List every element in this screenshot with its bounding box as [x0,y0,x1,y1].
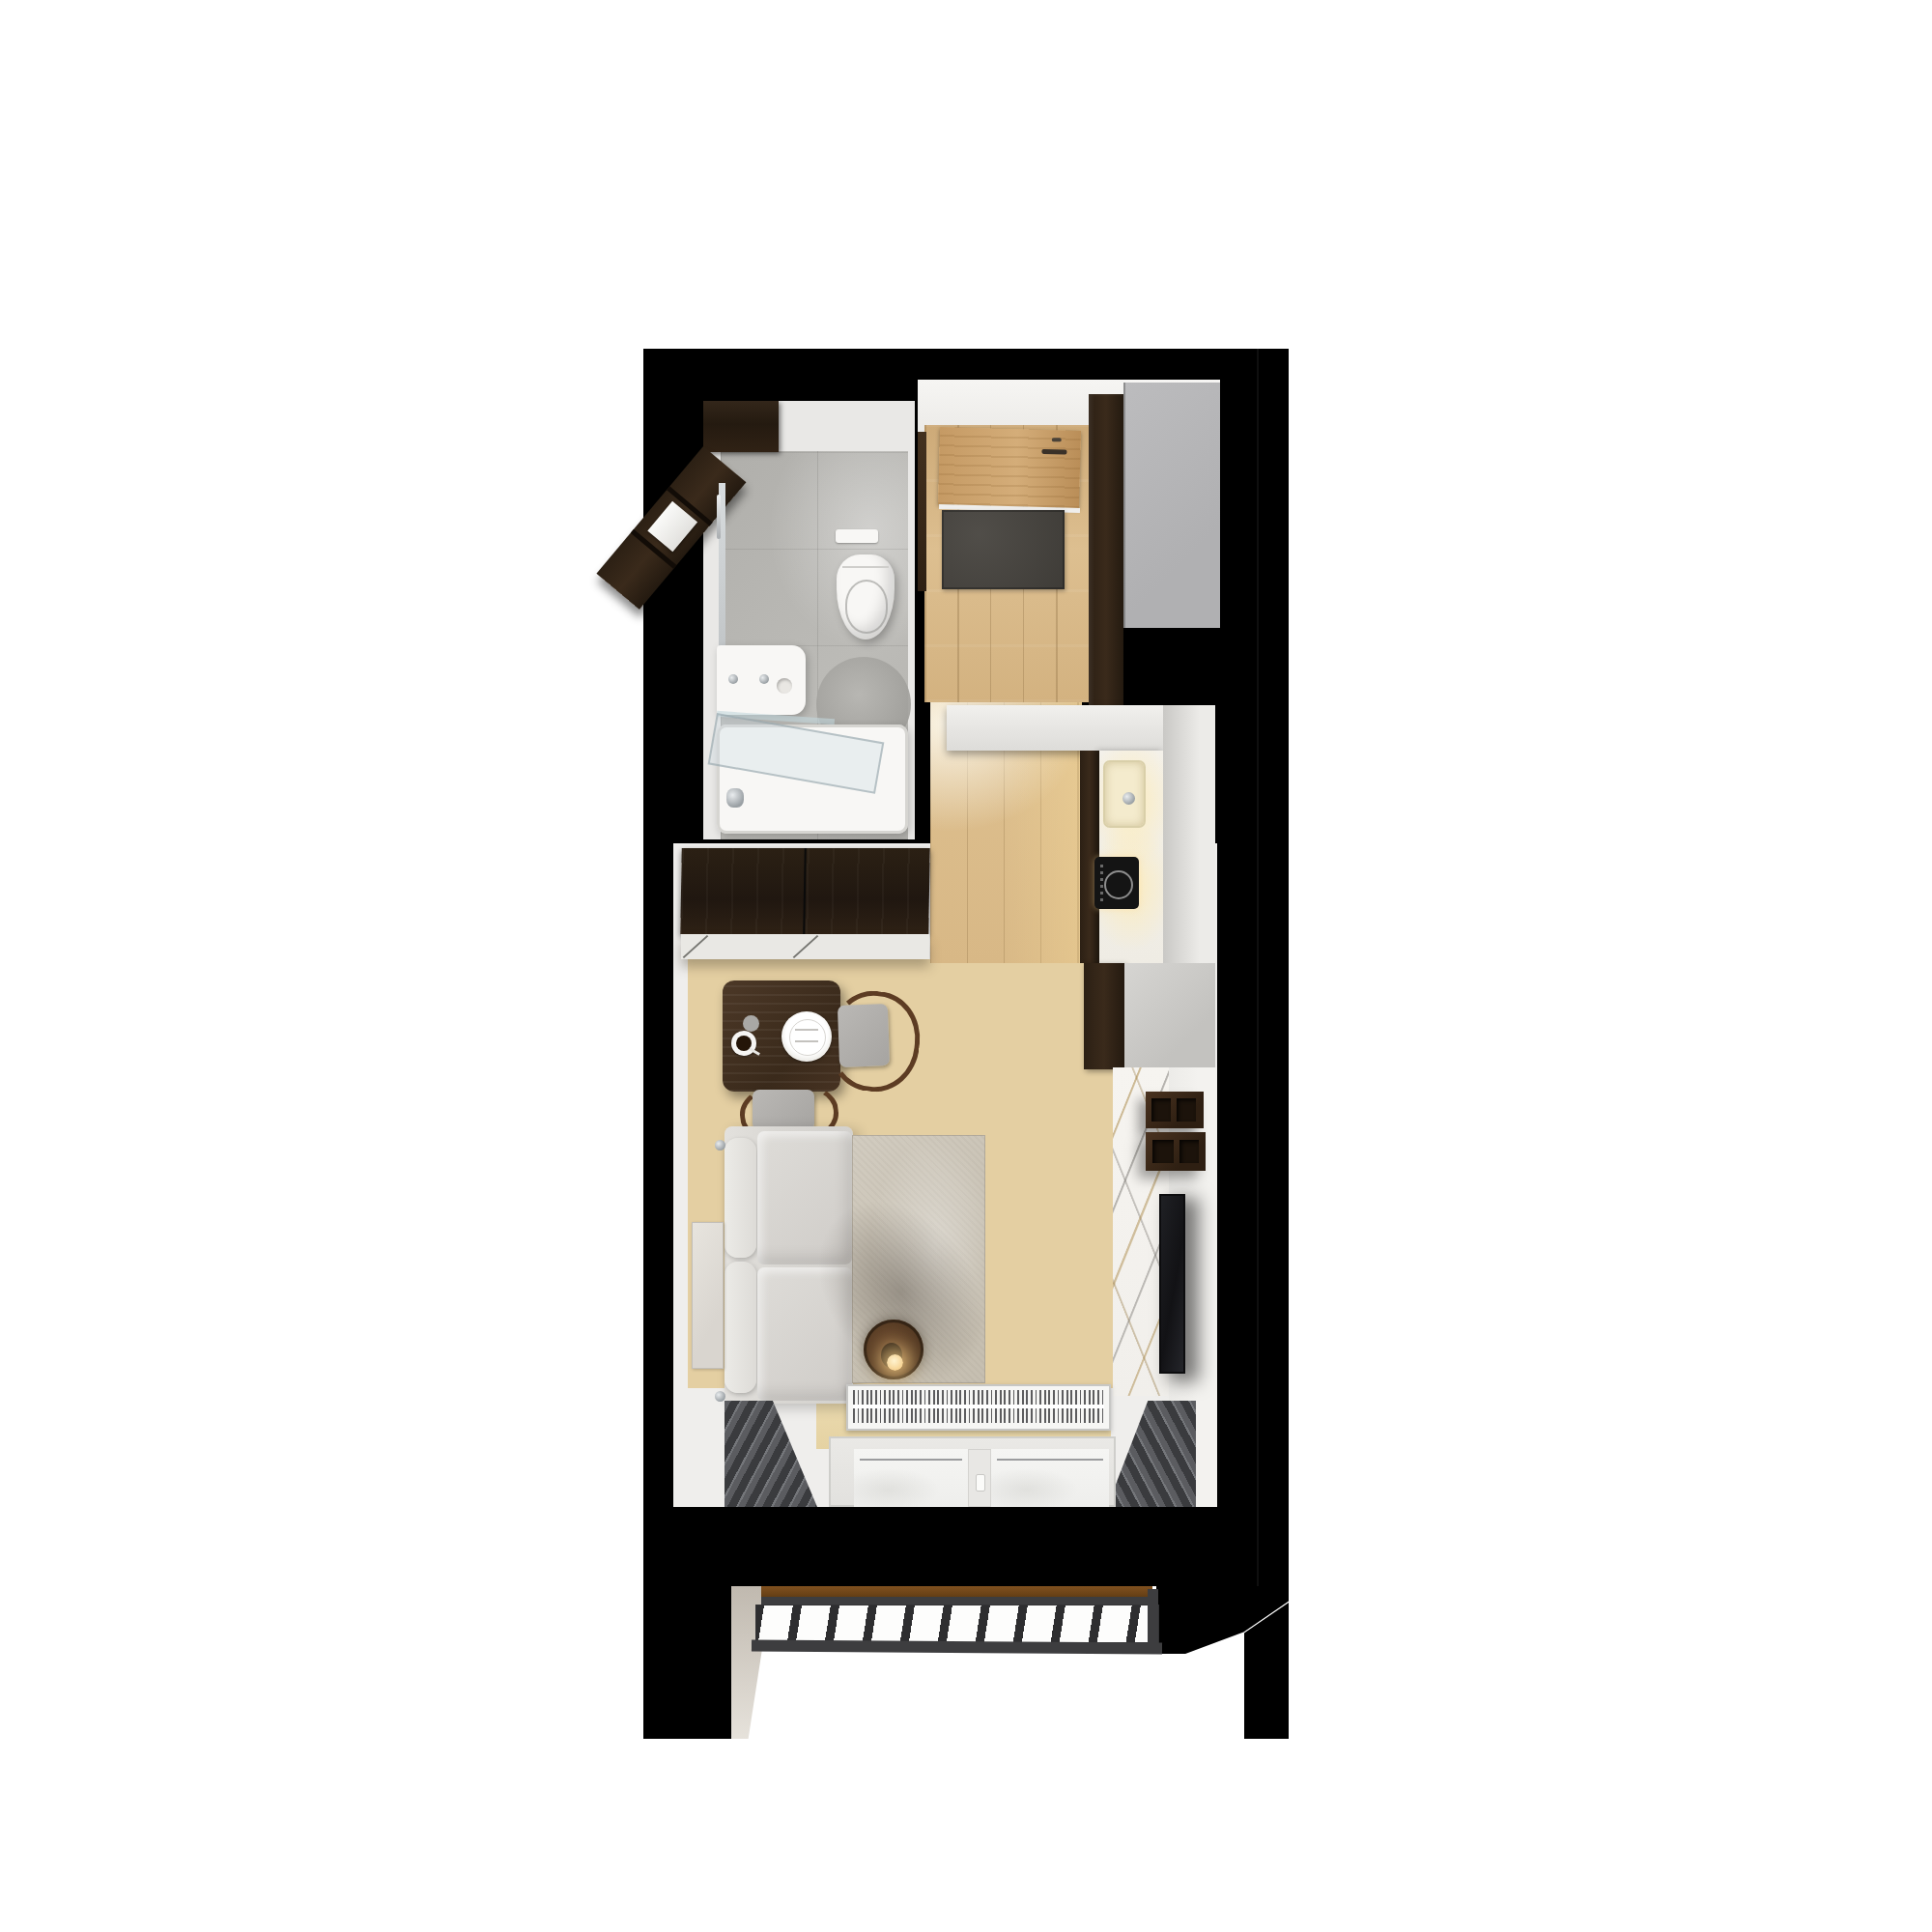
outer-wall-left-column [643,1586,731,1739]
window-pane-rail [860,1459,962,1461]
wardrobe-front-seam [793,935,819,958]
kitchen-low-cabinet [1084,963,1124,1069]
radiator-fins [853,1408,1104,1423]
grate-right-cap [1148,1589,1158,1651]
vanity-sink [717,645,806,715]
bathroom-wall-cabinet [703,401,779,452]
kitchen-upper-cabinet [947,705,1163,751]
wardrobe-door-seam [803,848,807,934]
faucet-icon [728,674,738,684]
sofa-back-cushion [724,1138,756,1258]
toilet-seat [845,580,888,634]
sofa-back-cushion [724,1262,756,1393]
wall-hook-icon [715,1140,725,1151]
window-mullion [968,1449,991,1507]
window-handle-icon [976,1474,985,1492]
napkin [743,1015,759,1032]
wall-mounted-tv [1159,1194,1185,1374]
dining-chair-right-seat [838,1004,890,1067]
cutlery-icon [795,1029,818,1031]
wall-art [692,1222,724,1369]
cutlery-icon [795,1040,818,1042]
wardrobe-front-seam [683,935,709,958]
toilet-flush-plate [836,529,878,543]
wall-shelf-box [1146,1092,1204,1128]
kitchen-side-panel [1163,705,1215,963]
radiator-grille [846,1384,1111,1431]
entry-door [938,427,1081,508]
shelf-compartment [1152,1140,1174,1163]
grate-bottom-bar [752,1640,1162,1655]
wardrobe-front-edge [681,934,929,959]
floorplan-stage [0,0,1932,1932]
doormat [942,510,1065,589]
balcony-grate-floor [755,1605,1159,1643]
hob-burner-ring [1104,870,1133,899]
shelf-compartment [1151,1098,1171,1122]
kitchen-faucet-icon [1122,792,1135,805]
basin [777,678,792,694]
sliding-wardrobe [680,848,930,934]
spoon-icon [749,1047,760,1056]
towel-bar-icon [717,495,721,539]
shelf-compartment [1177,1098,1196,1122]
plate-inner-ring [789,1019,826,1056]
faucet-icon [759,674,769,684]
shelf-compartment [1179,1140,1199,1163]
wall-shelf-box [1146,1132,1206,1171]
toilet-tank-line [842,566,889,568]
tub-faucet-icon [726,788,744,808]
window-pane-rail [997,1459,1103,1461]
hall-tall-cabinet [1089,394,1123,751]
door-handle-icon [1041,449,1066,455]
window-pane-left [854,1449,968,1507]
hall-gray-wardrobe [1123,383,1220,628]
door-lock-icon [1052,438,1062,441]
kitchen-end-panel [1124,963,1215,1071]
table-lamp-glowing [887,1354,903,1371]
induction-hob [1094,857,1139,909]
wall-hook-icon [715,1391,725,1402]
dining-table [723,980,840,1092]
coffee-cup [731,1031,756,1056]
wall-seam-line [1257,349,1259,1586]
dinner-plate [781,1011,832,1062]
door-frame-sliver [918,432,926,591]
hob-controls [1100,863,1103,901]
dining-chair-bottom-seat [753,1090,814,1130]
window-pane-right [991,1449,1109,1507]
radiator-fins [853,1390,1104,1405]
